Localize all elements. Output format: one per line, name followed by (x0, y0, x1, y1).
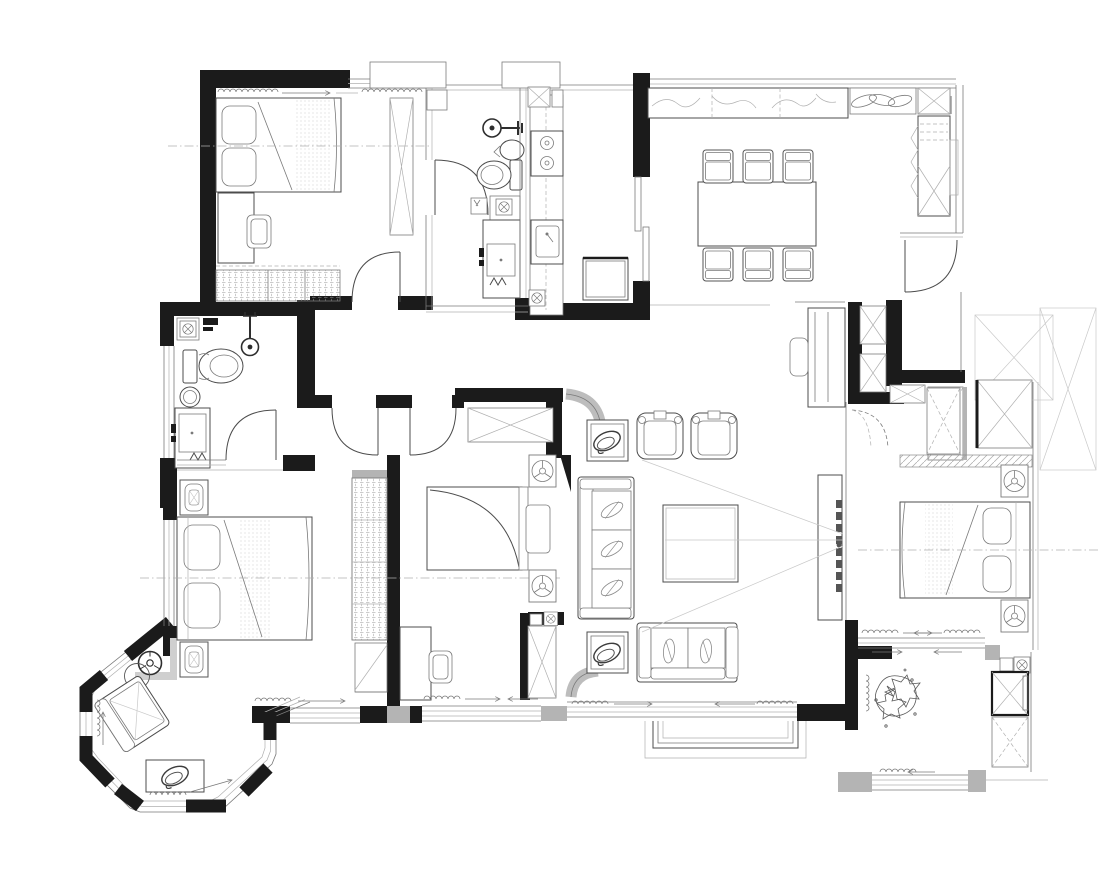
entry-closet-3 (890, 385, 925, 403)
door-bathroom-left (226, 410, 276, 460)
nightstand-bottom (529, 570, 556, 602)
bed (427, 487, 550, 570)
overhead-wardrobe (468, 408, 553, 442)
pilasters-top (370, 62, 560, 88)
marble-sideboard (648, 88, 848, 118)
bay-side-table (146, 760, 204, 792)
vanity (171, 408, 210, 468)
cabinet-top-right (918, 88, 950, 114)
vent (203, 318, 218, 325)
nightstand-top (180, 480, 208, 515)
dining-chairs-top (703, 150, 813, 183)
refrigerator (583, 258, 628, 300)
utility-boxes (1000, 657, 1030, 673)
window-master-bottom (290, 708, 360, 723)
washing-machine (992, 672, 1028, 715)
wardrobe-shelved (216, 266, 340, 301)
toilet (477, 160, 522, 190)
plant (875, 669, 920, 727)
desk (400, 627, 431, 700)
curtains-bedroom3 (862, 630, 980, 633)
room-living (528, 394, 846, 758)
window-master-left (164, 520, 174, 626)
armchair-1 (637, 411, 683, 459)
room-dining (648, 88, 958, 305)
closet-tall (390, 98, 413, 235)
washbasin (494, 140, 524, 160)
desk-chair (247, 215, 271, 248)
entry-closet-2 (860, 354, 886, 392)
shoe-cabinet (790, 302, 845, 407)
door-bedroom-right-folding (852, 410, 888, 448)
mirror-cabinet (355, 643, 387, 692)
shower-head-icon (483, 119, 522, 137)
nightstand-top (529, 455, 556, 487)
door-bedroom1 (352, 252, 400, 302)
window-bedroom3-right (1033, 382, 1038, 650)
kitchen-sink (531, 220, 563, 264)
lounge-chair (94, 675, 171, 753)
shelf-box (471, 198, 487, 214)
door-entry (905, 240, 957, 292)
room-bedroom-right (858, 380, 1100, 633)
kitchen-counter (530, 95, 563, 315)
coffee-table (663, 505, 738, 582)
tv-panel (836, 500, 842, 592)
nightstand-bottom (180, 642, 208, 677)
side-table-bottom (587, 632, 628, 673)
desk-chair (429, 651, 452, 683)
bath-storage (490, 196, 520, 220)
bay-window-bottom (645, 721, 806, 758)
sofa-3-seat (578, 477, 634, 619)
headboard-cushion (526, 505, 550, 553)
tv-console (818, 402, 846, 620)
corner-drain-box (177, 318, 199, 340)
floor-drain (529, 290, 545, 306)
door-master-bedroom (332, 408, 378, 455)
planter-box (850, 88, 916, 114)
dining-table (698, 182, 816, 246)
window-living-bottom (567, 702, 797, 717)
curtains-living (572, 701, 793, 704)
curtains-balcony (866, 652, 962, 772)
floor-plan-drawing (0, 0, 1112, 882)
wardrobe-hatched (352, 478, 387, 640)
storage-cabinet (992, 717, 1028, 767)
room-ensuite-bathroom (426, 88, 528, 312)
round-basin (180, 387, 200, 407)
nightstand-bottom (1001, 600, 1028, 632)
room-balcony (866, 652, 1048, 780)
vanity (479, 220, 520, 298)
dining-chairs-bottom (703, 248, 813, 281)
upper-cabinet (528, 87, 563, 107)
tall-display-cabinet (911, 116, 958, 216)
shower-head-icon (242, 312, 259, 356)
window-midbedroom-bottom (422, 706, 541, 721)
nightstand-top (1001, 465, 1028, 497)
window-dining-top (650, 79, 956, 88)
door-middle-bedroom (410, 408, 456, 455)
window-balcony-bottom (872, 775, 968, 790)
bed-double (177, 517, 312, 640)
curtains-master-bottom (255, 698, 345, 701)
wardrobe (977, 380, 1032, 448)
floor-plan-page (0, 0, 1112, 882)
sliding-door-kitchen (635, 177, 649, 281)
corner-shelf (427, 90, 447, 110)
side-table-top (587, 420, 628, 461)
entry-closet-1 (860, 306, 886, 344)
curtains-bedroom1 (218, 89, 422, 93)
armchair-2 (691, 411, 737, 459)
cabinet-knob (790, 338, 808, 376)
toilet (183, 349, 243, 383)
cooktop-2-burner (531, 131, 563, 176)
bed-double (216, 98, 341, 192)
room-kitchen (528, 87, 628, 315)
closet (927, 388, 960, 454)
loveseat-2-seat (637, 623, 738, 682)
